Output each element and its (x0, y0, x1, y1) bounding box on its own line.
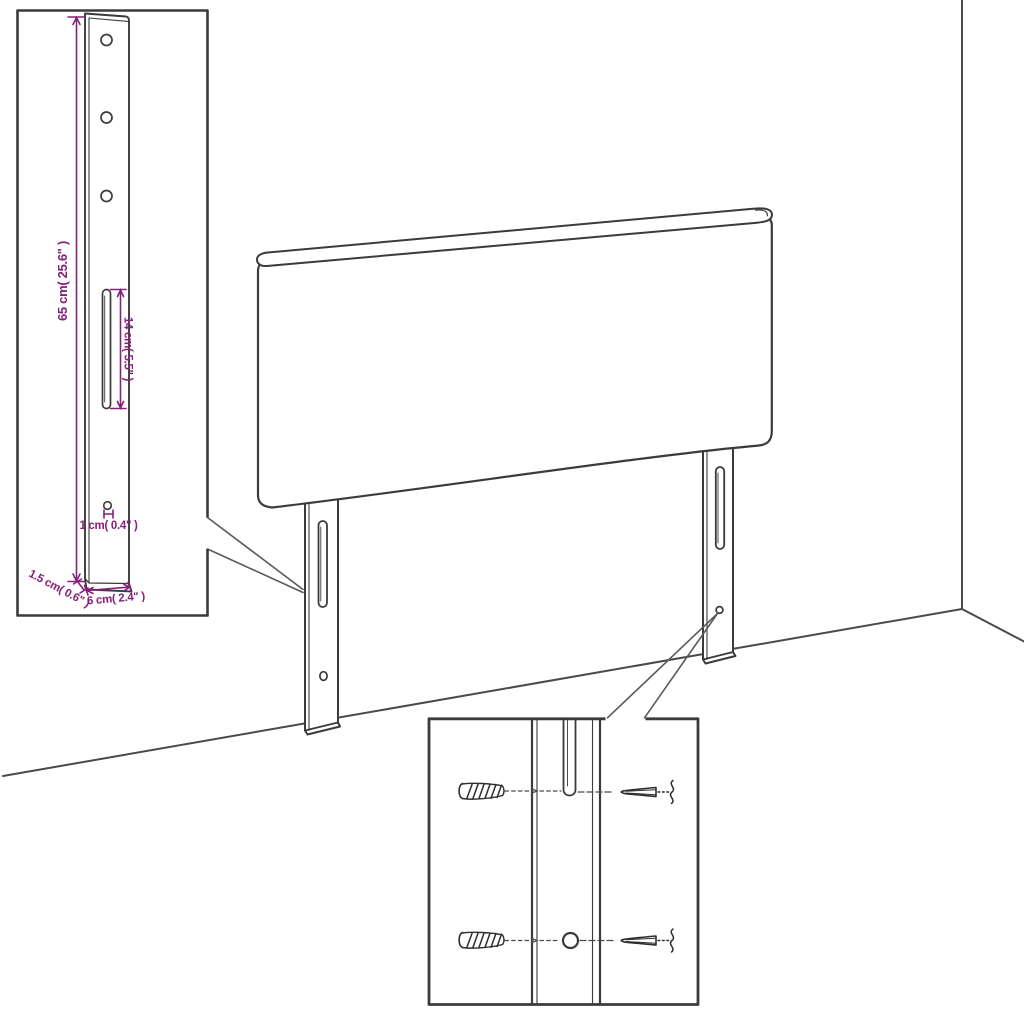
anchor-head (459, 784, 462, 799)
screw-body (621, 936, 656, 945)
dimension-diagram: 65 cm( 25.6" ) 14 cm( 5.5" ) 1 cm( 0.4" … (0, 0, 1024, 1024)
bracket (85, 14, 132, 592)
leg-strip (532, 719, 600, 1005)
inset-callout-line-upper (208, 518, 304, 590)
strip-hole (563, 933, 578, 948)
left-leg-outline (305, 492, 340, 735)
headboard (257, 208, 772, 507)
bracket-silhouette (85, 14, 132, 592)
dim-height (68, 17, 84, 582)
dim-thickness-label: 1.5 cm( 0.6" ) (27, 568, 92, 610)
dim-thickness-line (78, 582, 85, 591)
anchor-head (459, 933, 462, 948)
right-leg (703, 442, 736, 664)
anchor-end-cap (503, 935, 505, 945)
strip-slot (564, 719, 576, 796)
anchor-end-cap (503, 786, 505, 796)
detail-box-group (429, 719, 698, 1005)
screw-body (621, 788, 656, 797)
inset-box-group: 65 cm( 25.6" ) 14 cm( 5.5" ) 1 cm( 0.4" … (18, 11, 208, 616)
wall-break-squiggle (670, 929, 673, 952)
detail-callout-line-right (645, 614, 718, 718)
dim-slot-length-label: 14 cm( 5.5" ) (122, 317, 134, 382)
left-leg (305, 492, 340, 735)
machine-screw-bottom (621, 929, 673, 952)
callout-lines (208, 518, 718, 718)
right-leg-outline (703, 442, 736, 664)
leader-lines (505, 789, 615, 943)
floor-line-left (3, 609, 962, 776)
dim-height-label: 65 cm( 25.6" ) (55, 241, 70, 321)
anchor-screw-top (459, 783, 504, 799)
floor-line-right (962, 609, 1024, 642)
inset-callout-line-lower (208, 549, 304, 593)
machine-screw-top (621, 781, 673, 804)
dim-hole-label: 1 cm( 0.4" ) (79, 520, 138, 532)
wall-break-squiggle (670, 781, 673, 804)
anchor-screw-bottom (459, 932, 504, 948)
dimension-diagram-page: 65 cm( 25.6" ) 14 cm( 5.5" ) 1 cm( 0.4" … (0, 0, 1024, 1024)
detail-callout-line-left (608, 614, 718, 718)
dim-width-label: 6 cm( 2.4" ) (87, 590, 146, 607)
